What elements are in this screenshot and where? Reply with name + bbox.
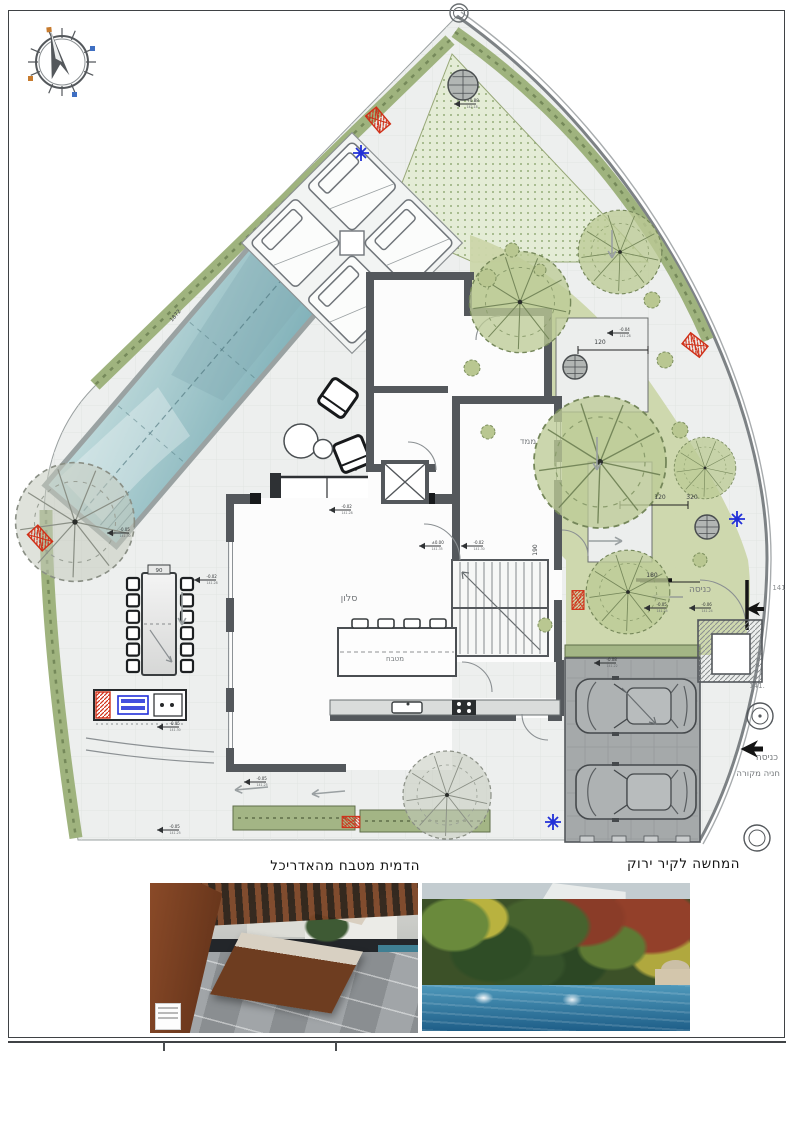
plan-sheet: 1872 230: [0, 0, 793, 1122]
chair-icon: [181, 627, 193, 639]
svg-text:-0.05: -0.05: [170, 721, 181, 726]
chair-icon: [181, 578, 193, 590]
svg-text:-0.05: -0.05: [170, 824, 181, 829]
label-kitchen: מטבח: [386, 655, 404, 663]
tree-icon: [469, 251, 570, 352]
svg-text:-0.05: -0.05: [657, 602, 668, 607]
svg-text:-0.02: -0.02: [474, 540, 485, 545]
chair-icon: [127, 594, 139, 606]
dim-190: 190: [532, 544, 539, 556]
bush-icon: [464, 360, 480, 376]
chair-icon: [181, 644, 193, 656]
bush-icon: [672, 422, 688, 438]
stool-icon: [430, 619, 446, 628]
label-safe-room: ממד: [520, 437, 536, 447]
compass-icon: [20, 20, 104, 104]
svg-text:-0.02: -0.02: [342, 504, 353, 509]
tree-icon: [586, 550, 670, 634]
render-stamp: [155, 1003, 181, 1031]
svg-text:141.25: 141.25: [170, 831, 181, 835]
bush-icon: [644, 292, 660, 308]
svg-text:-0.02: -0.02: [207, 574, 218, 579]
red-marker-icon: [342, 816, 360, 827]
chair-icon: [127, 627, 139, 639]
tree-icon: [674, 437, 736, 499]
svg-text:141.24: 141.24: [702, 609, 713, 613]
green-wall-photo: [422, 883, 690, 1031]
bush-icon: [478, 269, 496, 287]
right-photo-caption: המחשה לקיר ירוק: [422, 856, 740, 872]
chair-icon: [127, 660, 139, 672]
svg-text:141.30: 141.30: [170, 728, 181, 732]
bush-icon: [481, 425, 495, 439]
svg-text:141.28: 141.28: [207, 581, 218, 585]
svg-text:141.30: 141.30: [474, 547, 485, 551]
elevator: [383, 462, 427, 502]
svg-text:-0.06: -0.06: [702, 602, 713, 607]
bush-icon: [534, 264, 546, 276]
svg-text:141.28: 141.28: [620, 334, 631, 338]
svg-text:142.18: 142.18: [467, 105, 478, 109]
chair-icon: [181, 660, 193, 672]
tree-icon: [16, 463, 135, 582]
tree-icon: [534, 396, 666, 528]
sheet-tick: [163, 1042, 165, 1051]
left-photo-caption: הדמית מטבח מהאדריכל: [150, 858, 420, 874]
garage: [565, 658, 700, 842]
bush-icon: [657, 352, 673, 368]
svg-text:141.25: 141.25: [657, 609, 668, 613]
photo-hedge: [422, 899, 690, 990]
car-icon: [576, 762, 696, 822]
kitchen-render-photo: [150, 883, 418, 1033]
chair-icon: [127, 644, 139, 656]
stool-icon: [352, 619, 368, 628]
photo-pool-water: [422, 985, 690, 1031]
svg-text:-0.05: -0.05: [120, 527, 131, 532]
svg-text:141.22: 141.22: [607, 664, 618, 668]
site-plan: 1872 230: [0, 0, 793, 860]
sheet-tick: [335, 1042, 337, 1051]
svg-text:141.28: 141.28: [342, 511, 353, 515]
tree-icon: [578, 210, 662, 294]
stool-icon: [378, 619, 394, 628]
bush-icon: [505, 243, 519, 257]
tree-icon: [403, 751, 491, 839]
svg-text:-0.05: -0.05: [257, 776, 268, 781]
svg-text:+0.88: +0.88: [467, 98, 480, 103]
dim-320: 320: [686, 494, 698, 501]
tree-grate-icon: [563, 355, 587, 379]
stool-icon: [404, 619, 420, 628]
bush-icon: [538, 618, 552, 632]
staircase: [452, 560, 548, 656]
sheet-border-line2: [8, 1041, 786, 1043]
label-entrance: כניסה: [689, 585, 711, 595]
svg-text:141.30: 141.30: [120, 534, 131, 538]
dim-120a: 120: [594, 339, 606, 346]
bush-icon: [693, 553, 707, 567]
svg-text:141.35: 141.35: [432, 547, 443, 551]
svg-text:-0.04: -0.04: [620, 327, 631, 332]
tree-grate-icon: [448, 70, 478, 100]
kitchen-island: [338, 619, 456, 676]
kitchen-counter: [330, 700, 560, 715]
dim-table: 90: [156, 568, 163, 574]
red-marker-icon: [572, 591, 584, 610]
car-icon: [576, 676, 696, 736]
label-entrance-side: כניסה: [756, 753, 778, 763]
label-covered-parking: חניה מקורה: [736, 769, 780, 779]
dim-180: 180: [646, 572, 658, 579]
label-living-room: סלון: [341, 593, 358, 604]
chair-icon: [127, 611, 139, 623]
svg-text:±0.00: ±0.00: [432, 540, 445, 545]
chair-icon: [127, 578, 139, 590]
elevation-141: 141.: [749, 682, 765, 690]
tree-grate-icon: [695, 515, 719, 539]
svg-text:-0.08: -0.08: [607, 657, 618, 662]
elevation-141b: 141: [772, 584, 785, 592]
dim-120b: 120: [654, 494, 666, 501]
